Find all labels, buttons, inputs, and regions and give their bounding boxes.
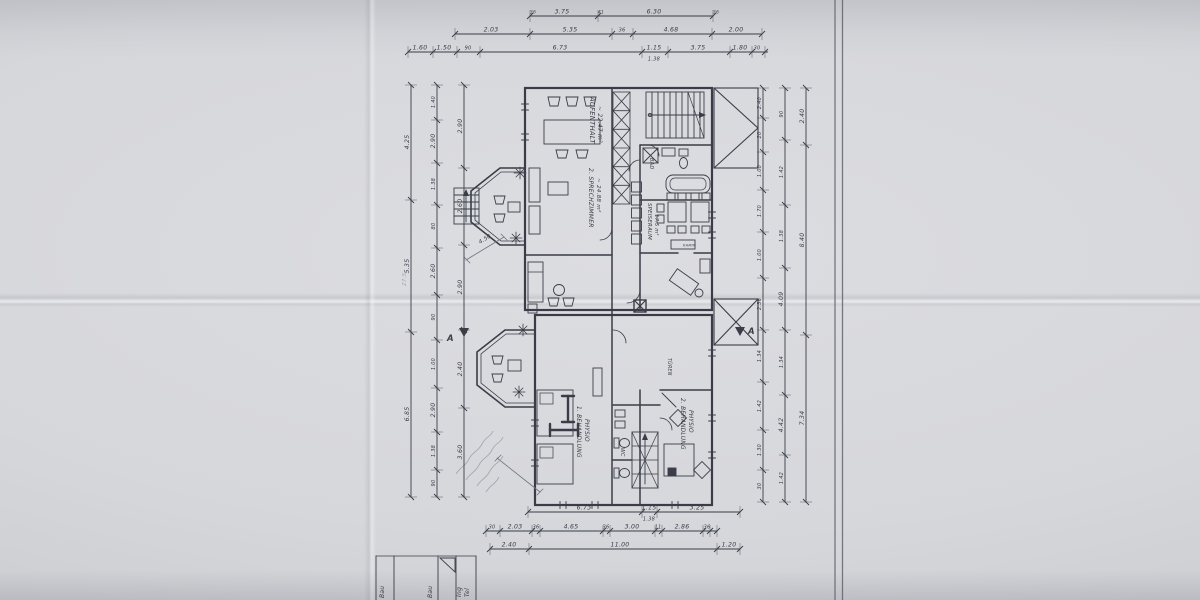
dimension-label: 6.30 bbox=[647, 8, 662, 15]
dimension-label: 4.65 bbox=[564, 523, 579, 530]
dimension-label: 1.70 bbox=[757, 205, 763, 217]
dimension-label: 2.40 bbox=[457, 362, 464, 377]
dimension-label: 1.38 bbox=[779, 230, 785, 242]
dimension-label: 1.00 bbox=[431, 358, 437, 370]
consult-room-furniture bbox=[528, 262, 574, 313]
room-label: TÜREN bbox=[666, 358, 673, 376]
annotation-label: A bbox=[747, 327, 755, 337]
sheet-border-lines bbox=[835, 0, 843, 600]
dimension-label: 2.90 bbox=[457, 280, 464, 295]
dimension-chains: 3.756.303641362.035.35364.682.001.601.50… bbox=[404, 8, 812, 555]
dimension-chain: 302.03364.65363.00112.8636 bbox=[483, 523, 720, 537]
dimension-label: 5.35 bbox=[563, 26, 578, 33]
dimension-label: 1.34 bbox=[779, 356, 785, 368]
room-label: BAD bbox=[648, 158, 654, 169]
dimension-label: 20 bbox=[757, 132, 763, 139]
title-block-entry: Ing bbox=[456, 587, 463, 597]
dimension-label: 8.40 bbox=[799, 233, 806, 248]
dimension-label: 36 bbox=[533, 524, 540, 530]
shaft-hatched-wall bbox=[613, 92, 630, 204]
terrace-crossed-square bbox=[714, 299, 758, 345]
dimension-chain: 2.408.407.34 bbox=[799, 85, 812, 505]
dimension-chain: 2.4011.001.20 bbox=[487, 541, 743, 555]
dimension-label: 36 bbox=[704, 524, 711, 530]
bathroom-fixtures bbox=[643, 148, 710, 193]
room-label: ~ 22.47 m² bbox=[596, 106, 603, 143]
dimension-label: 1.15 bbox=[647, 44, 662, 51]
dimension-label: 6.73 bbox=[577, 504, 592, 511]
treatment2-furniture bbox=[662, 393, 710, 478]
dimension-label: 1.42 bbox=[779, 472, 785, 484]
dimension-label: 3.00 bbox=[625, 523, 640, 530]
dimension-label: 1.38 bbox=[431, 445, 437, 457]
dimension-label: 2.03 bbox=[484, 26, 499, 33]
dimension-chain: 1.402.901.38802.60901.002.901.3890 bbox=[430, 82, 443, 500]
dimension-label: 80 bbox=[431, 223, 437, 230]
dimension-chain: 901.421.384.091.344.421.42 bbox=[778, 85, 791, 505]
diagonal-dimensions bbox=[464, 234, 543, 495]
dimension-label: 36 bbox=[603, 524, 610, 530]
room-label: WC bbox=[619, 448, 625, 457]
dimension-label: 2.90 bbox=[430, 403, 437, 418]
dimension-chain: 2.035.35364.682.00 bbox=[452, 26, 765, 40]
dimension-label: 2.00 bbox=[729, 26, 744, 33]
dimension-label: 6.85 bbox=[404, 407, 411, 422]
dimension-label: 1.00 bbox=[757, 249, 763, 261]
dimension-label: 1.20 bbox=[722, 541, 737, 548]
dimension-label: 5.35 bbox=[404, 259, 411, 274]
scanned-floorplan-photo: { "sheet": { "paper_color": "#d7d8dc", "… bbox=[0, 0, 1200, 600]
dimension-label: 1.80 bbox=[733, 44, 748, 51]
room-label: 2. SPRECHZIMMER bbox=[587, 168, 594, 228]
dimension-label: 90 bbox=[431, 480, 437, 487]
room-label: ~ 24.88 m² bbox=[595, 178, 602, 213]
dimension-chain: 3.756.30364136 bbox=[527, 8, 719, 22]
dimension-label: 2.86 bbox=[675, 523, 690, 530]
dimension-label: 4.25 bbox=[404, 135, 411, 150]
dimension-label: 1.42 bbox=[779, 166, 785, 178]
dimension-label: 2.03 bbox=[508, 523, 523, 530]
dimension-chain: 2.40201.001.701.002.361.341.421.3030 bbox=[757, 85, 769, 505]
dimension-label: 1.40 bbox=[431, 96, 437, 108]
dimension-sublabel: 1.38 bbox=[648, 57, 660, 63]
dimension-label: 90 bbox=[779, 111, 785, 118]
dimension-label: 2.60 bbox=[430, 264, 437, 279]
dimension-sublabel: 1.38 bbox=[643, 517, 655, 523]
treatment1-furniture bbox=[537, 368, 602, 484]
dimension-label: 36 bbox=[713, 9, 719, 15]
dimension-label: 1.15 bbox=[642, 504, 657, 511]
title-block-entry: Bau bbox=[379, 586, 386, 598]
staircase-top bbox=[646, 92, 706, 138]
dimension-label: 36 bbox=[619, 27, 626, 33]
dimension-label: 36 bbox=[530, 9, 536, 15]
dimension-label: 3.25 bbox=[690, 504, 705, 511]
dimension-chain: 2.902.602.902.403.60 bbox=[457, 82, 470, 500]
pencil-notes bbox=[456, 431, 503, 492]
floor-plan-drawing: 3.756.303641362.035.35364.682.001.601.50… bbox=[0, 0, 1200, 600]
gable-roof-outline bbox=[714, 88, 758, 168]
annotation-label: A bbox=[446, 334, 454, 344]
title-block-triangle-icon bbox=[440, 558, 455, 572]
dimension-chain: 6.731.153.251.38 bbox=[525, 504, 743, 522]
room-labels: AUFENTHALT~ 22.47 m²2. SPRECHZIMMER~ 24.… bbox=[575, 96, 696, 458]
dimension-label: 3.75 bbox=[555, 8, 570, 15]
dimension-label: 1.50 bbox=[437, 44, 452, 51]
dimension-label: 1.42 bbox=[757, 400, 763, 412]
dimension-label: 4.42 bbox=[778, 418, 785, 433]
title-block-entry: Tel bbox=[464, 588, 471, 597]
dimension-label: 1.38 bbox=[431, 178, 437, 190]
dimension-label: 90 bbox=[465, 45, 472, 51]
dimension-label: 30 bbox=[489, 524, 496, 530]
room-label: 1. BEHANDLUNG bbox=[575, 406, 581, 458]
annotation-label: 27.5 bbox=[402, 272, 408, 286]
room-label: ~ 17.5 m² bbox=[653, 208, 659, 236]
dimension-label: 2.36 bbox=[757, 298, 763, 310]
dimension-label: 6.73 bbox=[553, 44, 568, 51]
dimension-label: 2.60 bbox=[457, 199, 464, 214]
corridor-fixtures bbox=[632, 182, 647, 312]
dimension-label: 4.09 bbox=[778, 292, 785, 307]
annotation-label: 4.50 bbox=[478, 233, 493, 245]
dimension-chain: 4.255.356.85 bbox=[404, 82, 417, 500]
dimension-label: 1.30 bbox=[757, 444, 763, 456]
dimension-chain: 1.601.50906.731.153.751.80301.38 bbox=[405, 44, 768, 62]
dining-furniture bbox=[657, 193, 710, 249]
room-label: PHYSIO bbox=[687, 410, 693, 433]
dimension-label: 90 bbox=[431, 314, 437, 321]
office-furniture bbox=[669, 259, 710, 297]
massage-table bbox=[550, 396, 578, 436]
dimension-label: 1.60 bbox=[413, 44, 428, 51]
dimension-label: 2.40 bbox=[502, 541, 517, 548]
dimension-label: 30 bbox=[757, 483, 763, 490]
title-block-entry: Bau bbox=[427, 586, 434, 598]
dimension-label: 7.34 bbox=[799, 411, 806, 426]
room-label: PHYSIO bbox=[583, 419, 589, 442]
dimension-label: 1.34 bbox=[757, 350, 763, 362]
dimension-label: 30 bbox=[754, 45, 761, 51]
title-block-text: IngTelBauBau bbox=[379, 586, 471, 598]
dimension-label: 2.40 bbox=[757, 97, 763, 109]
dimension-label: 4.68 bbox=[664, 26, 679, 33]
dimension-label: 41 bbox=[598, 9, 604, 15]
dimension-label: 11.00 bbox=[611, 541, 630, 548]
annotations: AA4.5027.5 bbox=[402, 233, 755, 344]
door-arcs bbox=[600, 145, 672, 430]
bay-window-bottom bbox=[477, 330, 535, 407]
room-label: AUFENTHALT bbox=[588, 96, 596, 144]
dimension-label: 1.00 bbox=[757, 165, 763, 177]
dimension-label: 3.60 bbox=[457, 445, 464, 460]
dimension-label: 3.75 bbox=[691, 44, 706, 51]
dimension-label: 2.90 bbox=[457, 119, 464, 134]
room-label: SPEISERAUM bbox=[646, 203, 652, 240]
bay-furniture bbox=[492, 167, 529, 398]
dimension-label: 2.40 bbox=[799, 109, 806, 124]
room-label: 2. BEHANDLUNG bbox=[679, 398, 685, 450]
dimension-label: 11 bbox=[655, 524, 662, 530]
dimension-label: 2.90 bbox=[430, 134, 437, 149]
room-label: KAMIN bbox=[683, 244, 696, 248]
